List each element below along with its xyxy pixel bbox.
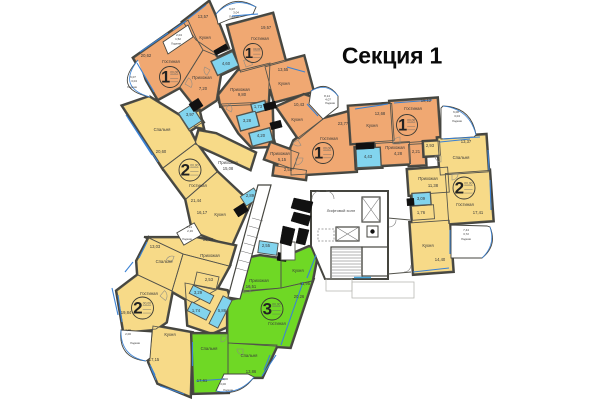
- svg-text:13,37: 13,37: [461, 139, 472, 144]
- svg-text:Кухня: Кухня: [422, 243, 433, 248]
- svg-text:Гостиная: Гостиная: [162, 59, 180, 64]
- svg-text:17,15: 17,15: [149, 357, 160, 362]
- svg-text:10,43: 10,43: [294, 102, 305, 107]
- svg-text:1,76: 1,76: [417, 210, 426, 215]
- svg-text:13,03: 13,03: [150, 244, 161, 249]
- svg-text:5,86: 5,86: [218, 308, 227, 313]
- svg-text:13,86: 13,86: [246, 369, 257, 374]
- svg-text:2,21: 2,21: [412, 149, 421, 154]
- svg-text:4,28: 4,28: [394, 151, 403, 156]
- svg-text:Гостиная: Гостиная: [456, 202, 474, 207]
- svg-text:00,00: 00,00: [323, 147, 331, 151]
- svg-text:2: 2: [133, 299, 142, 318]
- svg-text:Лифтовой холл: Лифтовой холл: [327, 208, 356, 213]
- svg-text:00,00: 00,00: [253, 47, 261, 51]
- svg-text:Спальня: Спальня: [156, 259, 173, 264]
- svg-text:00,00: 00,00: [190, 163, 198, 167]
- svg-text:Гостиная: Гостиная: [268, 321, 286, 326]
- svg-text:3,28: 3,28: [243, 118, 252, 123]
- svg-text:Гостиная: Гостиная: [140, 291, 158, 296]
- svg-text:1: 1: [161, 68, 170, 86]
- svg-text:4,60: 4,60: [222, 61, 231, 66]
- svg-text:2,16: 2,16: [187, 229, 193, 233]
- svg-text:Лоджия: Лоджия: [223, 388, 233, 392]
- svg-text:1,52: 1,52: [175, 37, 181, 41]
- svg-text:Лоджия: Лоджия: [325, 101, 335, 105]
- svg-text:20,60: 20,60: [156, 149, 167, 154]
- svg-text:Лоджия: Лоджия: [461, 237, 471, 241]
- svg-text:Гостиная: Гостиная: [320, 136, 338, 141]
- svg-text:20,26: 20,26: [294, 294, 305, 299]
- svg-text:2,93: 2,93: [426, 143, 435, 148]
- svg-text:1,74: 1,74: [192, 308, 201, 313]
- svg-text:3,00: 3,00: [220, 382, 226, 386]
- svg-text:2,55: 2,55: [262, 243, 271, 248]
- svg-text:13,57: 13,57: [198, 14, 209, 19]
- svg-text:17,41: 17,41: [473, 210, 484, 215]
- svg-text:Кухня: Кухня: [278, 81, 289, 86]
- svg-text:16,17: 16,17: [197, 210, 208, 215]
- svg-text:Спальня: Спальня: [453, 155, 470, 160]
- svg-text:4,00: 4,00: [222, 377, 228, 381]
- svg-text:Лоджия: Лоджия: [182, 237, 192, 241]
- svg-text:1: 1: [398, 116, 407, 134]
- svg-text:00,00: 00,00: [407, 119, 415, 123]
- svg-text:Прихожая: Прихожая: [270, 151, 289, 156]
- svg-text:Лоджия: Лоджия: [229, 15, 239, 19]
- svg-text:Спальня: Спальня: [201, 346, 218, 351]
- svg-text:13,55: 13,55: [278, 67, 289, 72]
- svg-text:3,97: 3,97: [186, 112, 195, 117]
- svg-text:2: 2: [455, 179, 464, 198]
- svg-text:Гостиная: Гостиная: [189, 183, 207, 188]
- svg-text:1: 1: [245, 46, 253, 62]
- svg-text:19,57: 19,57: [261, 25, 272, 30]
- svg-text:21,44: 21,44: [191, 198, 202, 203]
- svg-text:2,58: 2,58: [284, 167, 293, 172]
- svg-text:Лоджия: Лоджия: [127, 85, 137, 89]
- svg-text:23,77: 23,77: [338, 121, 349, 126]
- svg-text:3: 3: [263, 300, 272, 319]
- svg-text:11,38: 11,38: [428, 183, 439, 188]
- svg-text:Прихожая: Прихожая: [200, 253, 219, 258]
- svg-text:12,68: 12,68: [375, 111, 386, 116]
- svg-text:3,29: 3,29: [194, 290, 203, 295]
- svg-text:2,89: 2,89: [246, 193, 255, 198]
- svg-text:Гостиная: Гостиная: [404, 106, 422, 111]
- svg-text:4,20: 4,20: [257, 133, 266, 138]
- svg-text:2: 2: [181, 161, 190, 180]
- svg-text:2,00: 2,00: [125, 332, 131, 336]
- svg-text:1,73: 1,73: [254, 104, 263, 109]
- svg-text:3,04: 3,04: [131, 79, 137, 83]
- svg-text:17,61: 17,61: [197, 378, 208, 383]
- svg-text:00,00: 00,00: [464, 181, 472, 185]
- svg-text:4,43: 4,43: [364, 154, 373, 159]
- svg-text:7,20: 7,20: [199, 86, 208, 91]
- svg-text:14,40: 14,40: [435, 257, 446, 262]
- svg-text:Кухня: Кухня: [292, 268, 303, 273]
- svg-text:Кухня: Кухня: [366, 123, 377, 128]
- svg-text:Секция 1: Секция 1: [342, 43, 443, 69]
- svg-text:2,53: 2,53: [205, 277, 214, 282]
- svg-text:5,15: 5,15: [278, 157, 287, 162]
- svg-text:Кухня: Кухня: [291, 117, 302, 122]
- svg-text:20,62: 20,62: [141, 53, 152, 58]
- svg-text:3,72: 3,72: [463, 232, 469, 236]
- svg-text:00,00: 00,00: [143, 301, 151, 305]
- svg-text:16,51: 16,51: [246, 284, 257, 289]
- svg-text:Кухня: Кухня: [164, 332, 175, 337]
- svg-text:15,08: 15,08: [223, 166, 234, 171]
- svg-text:Лоджия: Лоджия: [171, 42, 181, 46]
- svg-text:1: 1: [314, 144, 323, 162]
- svg-text:9,80: 9,80: [238, 92, 247, 97]
- svg-text:Прихожая: Прихожая: [418, 176, 437, 181]
- svg-text:00,00: 00,00: [272, 302, 280, 306]
- svg-text:Лоджия: Лоджия: [130, 341, 140, 345]
- svg-text:19,84: 19,84: [121, 310, 132, 315]
- svg-text:Прихожая: Прихожая: [249, 278, 268, 283]
- svg-text:3,09: 3,09: [417, 196, 426, 201]
- svg-text:Лоджия: Лоджия: [452, 119, 462, 123]
- svg-text:Прихожая: Прихожая: [385, 145, 404, 150]
- svg-text:16,69: 16,69: [203, 237, 214, 242]
- svg-text:18,12: 18,12: [421, 98, 432, 103]
- svg-text:Кухня: Кухня: [214, 212, 225, 217]
- svg-text:Гостиная: Гостиная: [251, 36, 269, 41]
- svg-text:Кухня: Кухня: [199, 35, 210, 40]
- svg-text:2,04: 2,04: [176, 33, 182, 37]
- svg-text:Спальня: Спальня: [241, 353, 258, 358]
- svg-text:Спальня: Спальня: [154, 127, 171, 132]
- svg-text:3,04: 3,04: [454, 114, 460, 118]
- svg-text:11,95: 11,95: [300, 281, 311, 286]
- svg-text:Прихожая: Прихожая: [218, 160, 237, 165]
- svg-text:00,00: 00,00: [170, 71, 178, 75]
- svg-text:Прихожая: Прихожая: [192, 75, 211, 80]
